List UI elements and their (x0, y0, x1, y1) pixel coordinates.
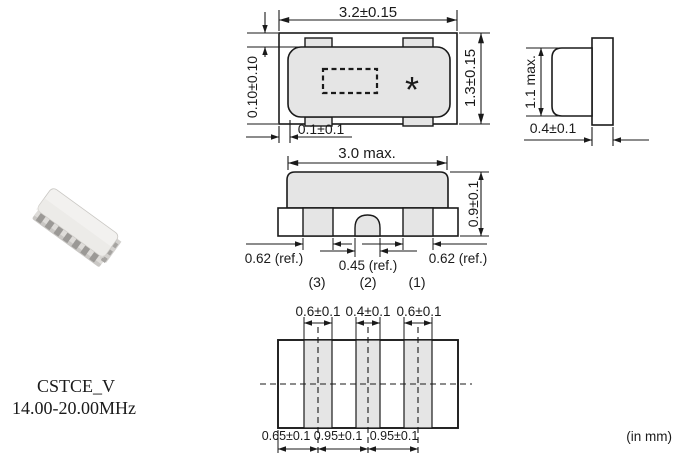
dim-cap-clearance-horizontal: 0.1±0.1 (298, 121, 345, 137)
bottom-electrode-3 (304, 340, 332, 428)
substrate-edge (592, 38, 613, 125)
dim-bottom-electrode3-width: 0.6±0.1 (296, 304, 341, 319)
side-electrode (403, 117, 433, 126)
product-photo (30, 187, 124, 269)
dim-bottom-electrode1-width: 0.6±0.1 (397, 304, 442, 319)
dim-substrate-thickness: 0.4±0.1 (530, 120, 577, 136)
dim-cap-clearance-vertical: 0.10±0.10 (244, 56, 260, 118)
bottom-electrode-1 (404, 340, 432, 428)
dim-top-height: 1.3±0.15 (462, 49, 479, 107)
dim-electrode-center: 0.45 (ref.) (339, 258, 398, 273)
dim-center2-to-center3: 0.95±0.1 (370, 429, 419, 443)
dim-front-height: 0.9±0.1 (465, 180, 481, 227)
cap-profile (552, 48, 592, 116)
datasheet-dimension-drawing: * 3.2±0.15 1.3±0.15 0.10±0.10 0.1±0.1 1.… (0, 0, 676, 457)
bottom-view: 0.6±0.1 0.4±0.1 0.6±0.1 0.65±0.1 0.95±0.… (260, 304, 472, 453)
dim-center1-to-center2: 0.95±0.1 (314, 429, 363, 443)
technical-drawing: * 3.2±0.15 1.3±0.15 0.10±0.10 0.1±0.1 1.… (0, 0, 676, 457)
dim-front-width: 3.0 max. (338, 145, 396, 162)
part-frequency-label: 14.00-20.00MHz (12, 398, 136, 418)
top-view: * 3.2±0.15 1.3±0.15 0.10±0.10 0.1±0.1 (244, 4, 490, 143)
electrode-2 (355, 215, 380, 236)
resonator-cap (288, 47, 450, 117)
dim-edge-to-center1: 0.65±0.1 (262, 429, 311, 443)
dim-side-height: 1.1 max. (522, 55, 538, 109)
terminal-1-label: (1) (408, 274, 425, 290)
part-series-label: CSTCE_V (37, 376, 115, 396)
terminal-3-label: (3) (308, 274, 325, 290)
dim-electrode-left: 0.62 (ref.) (245, 251, 304, 266)
front-view: 3.0 max. 0.9±0.1 0.62 (ref.) 0.45 (ref.)… (245, 145, 489, 290)
units-note: (in mm) (626, 429, 672, 444)
terminal-2-label: (2) (359, 274, 376, 290)
bottom-electrode-2 (356, 340, 380, 428)
side-view: 1.1 max. 0.4±0.1 (522, 38, 649, 146)
electrode-3 (303, 208, 333, 236)
resonator-cap-front (287, 172, 448, 208)
dim-electrode-right: 0.62 (ref.) (429, 251, 488, 266)
dim-top-width: 3.2±0.15 (339, 4, 397, 21)
polarity-marking: * (405, 69, 419, 110)
electrode-1 (403, 208, 433, 236)
dim-bottom-electrode2-width: 0.4±0.1 (346, 304, 391, 319)
